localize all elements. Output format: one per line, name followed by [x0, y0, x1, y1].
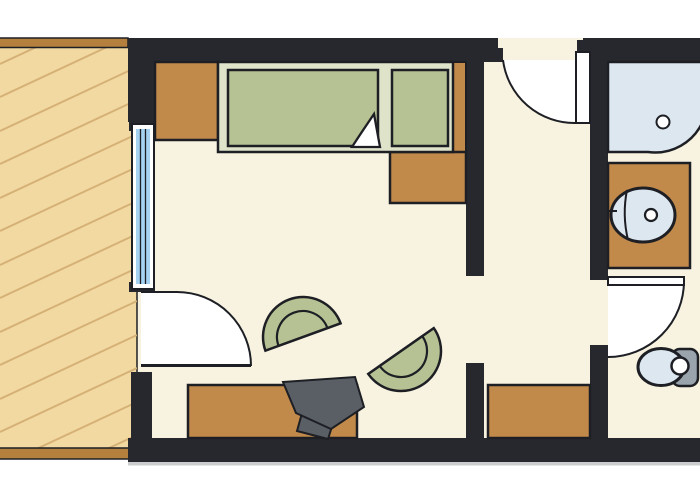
balcony: [0, 0, 137, 499]
wall-left-lower: [131, 372, 152, 442]
bathroom-door-leaf: [608, 277, 684, 285]
wall-bathroom-lower: [590, 345, 608, 438]
washbasin: [611, 188, 675, 242]
wall-top-left: [128, 38, 498, 62]
balcony-railing-bottom: [0, 448, 133, 459]
wall-left-upper: [128, 38, 155, 122]
toilet-flush: [672, 358, 689, 375]
wall-partition-lower: [466, 363, 484, 438]
mattress: [228, 70, 378, 146]
shower: [608, 62, 700, 153]
wall-bathroom-upper: [590, 38, 608, 280]
entrance-door-stop-left: [498, 48, 503, 62]
nightstand: [155, 62, 218, 140]
pillow-section: [392, 70, 448, 146]
wall-partition-upper: [466, 38, 484, 276]
floor-plan-page: [0, 0, 700, 500]
window: [132, 124, 154, 289]
hall-cabinet: [488, 385, 590, 438]
balcony-railing-top: [0, 38, 128, 48]
wall-shadow: [128, 462, 700, 466]
bed: [218, 62, 453, 152]
floor-plan: [0, 0, 700, 500]
entrance-door-leaf: [576, 52, 590, 123]
window-glass: [136, 129, 150, 284]
basin-drain: [645, 209, 657, 221]
wall-bottom: [128, 438, 700, 462]
shower-drain: [657, 116, 670, 129]
foot-dresser: [390, 152, 466, 203]
